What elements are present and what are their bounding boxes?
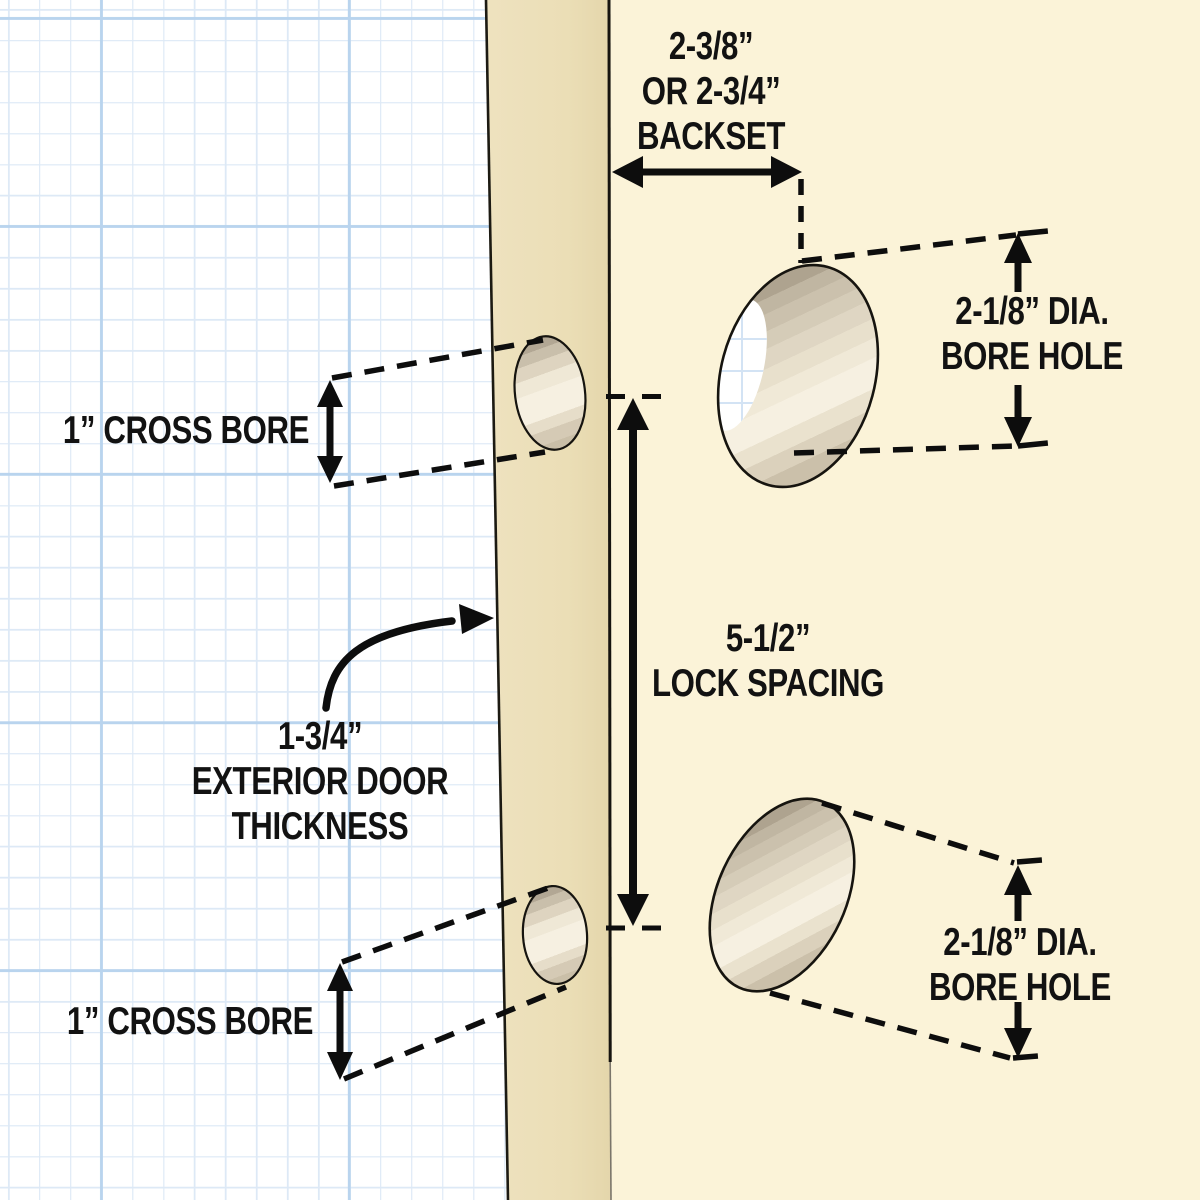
- bore-bottom-lower-corner-dash: [1013, 1056, 1038, 1058]
- cross-bore-bottom-dimension-arrow: [327, 963, 353, 1080]
- door-edge-right-outline: [609, 0, 610, 1062]
- door-face: [609, 0, 1200, 1200]
- door-thickness-pointer-arrow: [326, 604, 494, 708]
- bore-bottom-upper-corner-dash: [1017, 860, 1042, 862]
- door-measurement-diagram: 2-3/8” OR 2-3/4” BACKSET 2-1/8” DIA. BOR…: [0, 0, 1200, 1200]
- bore-top-lower-corner-dash: [1018, 443, 1048, 446]
- diagram-canvas: [0, 0, 1200, 1200]
- bore-top-upper-corner-dash: [1018, 231, 1048, 234]
- cross-bore-top-dimension-arrow: [317, 380, 343, 483]
- door-edge-right-outline-lower: [610, 1062, 611, 1200]
